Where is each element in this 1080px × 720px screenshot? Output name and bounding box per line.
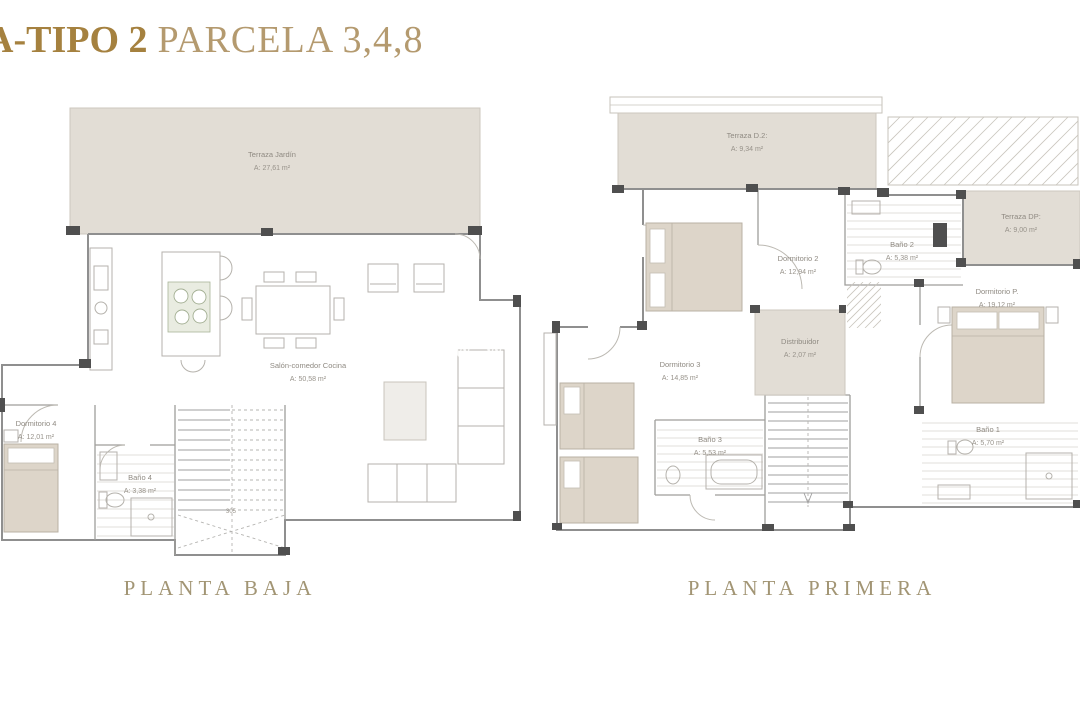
room-area-dormitorio-3: A: 14,85 m² bbox=[662, 375, 699, 382]
room-label-dormitorio-4: Dormitorio 4 bbox=[16, 419, 57, 428]
room-label-terraza-dp: Terraza DP: bbox=[1001, 212, 1041, 221]
sink bbox=[100, 452, 117, 480]
floor-plan-sheet: A-TIPO 2PARCELA 3,4,8 Terraza Jardín A: … bbox=[0, 0, 1080, 720]
sink bbox=[852, 201, 880, 214]
room-label-terraza-d2: Terraza D.2: bbox=[727, 131, 768, 140]
room-area-terraza-d2: A: 9,34 m² bbox=[731, 146, 764, 153]
beds-dormitorio-3 bbox=[560, 383, 638, 523]
room-label-dormitorio-3: Dormitorio 3 bbox=[660, 360, 701, 369]
room-label-bano-1: Baño 1 bbox=[976, 425, 1000, 434]
toilet bbox=[863, 260, 881, 274]
nightstand bbox=[938, 307, 950, 323]
room-area-distribuidor: A: 2,07 m² bbox=[784, 352, 817, 359]
room-label-salon: Salón-comedor Cocina bbox=[270, 361, 347, 370]
floor-plan-first: Terraza D.2: A: 9,34 m² Terraza DP: A: 9… bbox=[540, 95, 1080, 555]
nightstand bbox=[1046, 307, 1058, 323]
room-area-terraza-dp: A: 9,00 m² bbox=[1005, 227, 1038, 234]
toilet-tank bbox=[856, 260, 863, 274]
bathroom-2 bbox=[847, 201, 961, 277]
floor-plan-ground: Terraza Jardín A: 27,61 m² bbox=[0, 100, 540, 570]
room-area-terraza-jardin: A: 27,61 m² bbox=[254, 165, 291, 172]
bathroom-1 bbox=[922, 423, 1078, 503]
nightstand bbox=[4, 430, 18, 442]
toilet-tank bbox=[948, 441, 956, 454]
stair-note: 305 bbox=[226, 509, 237, 515]
room-label-bano-3: Baño 3 bbox=[698, 435, 722, 444]
room-area-dormitorio-4: A: 12,01 m² bbox=[18, 434, 55, 441]
coffee-table bbox=[384, 382, 426, 440]
stool bbox=[181, 360, 205, 372]
shower-tray bbox=[1026, 453, 1072, 499]
dining-table bbox=[242, 272, 344, 348]
caption-planta-baja: PLANTA BAJA bbox=[60, 576, 380, 601]
stool bbox=[220, 256, 232, 280]
bed-dormitorio-2 bbox=[646, 223, 742, 311]
room-area-salon: A: 50,58 m² bbox=[290, 376, 327, 383]
parapet bbox=[610, 97, 882, 113]
hob bbox=[168, 282, 210, 332]
stool bbox=[220, 296, 232, 320]
bed-dormitorio-p bbox=[938, 307, 1058, 403]
title-parcel: PARCELA 3,4,8 bbox=[158, 19, 424, 61]
toilet bbox=[666, 466, 680, 484]
room-label-bano-2: Baño 2 bbox=[890, 240, 914, 249]
exterior-ledge bbox=[544, 333, 556, 425]
room-label-bano-4: Baño 4 bbox=[128, 473, 152, 482]
caption-planta-primera: PLANTA PRIMERA bbox=[652, 576, 972, 601]
room-area-bano-1: A: 5,70 m² bbox=[972, 440, 1005, 447]
room-label-dormitorio-p: Dormitorio P. bbox=[976, 287, 1019, 296]
page-title: A-TIPO 2PARCELA 3,4,8 bbox=[0, 18, 424, 62]
staircase-first bbox=[768, 397, 848, 507]
staircase-ground: 305 bbox=[178, 405, 285, 555]
room-area-dormitorio-p: A: 19,12 m² bbox=[979, 302, 1016, 309]
armchairs bbox=[368, 264, 444, 292]
room-area-dormitorio-2: A: 12,94 m² bbox=[780, 269, 817, 276]
kitchen-island bbox=[162, 252, 232, 372]
room-label-distribuidor: Distribuidor bbox=[781, 337, 819, 346]
shower-tray bbox=[131, 498, 172, 536]
room-area-bano-3: A: 5,53 m² bbox=[694, 450, 727, 457]
room-area-bano-4: A: 3,38 m² bbox=[124, 488, 157, 495]
title-model: A-TIPO 2 bbox=[0, 19, 148, 61]
room-label-terraza-jardin: Terraza Jardín bbox=[248, 150, 296, 159]
bed-dormitorio-4 bbox=[4, 430, 58, 532]
tile-hatch bbox=[922, 423, 1078, 503]
shower-drain bbox=[1046, 473, 1052, 479]
kitchen-counter bbox=[90, 248, 112, 370]
bathtub-basin bbox=[711, 460, 757, 484]
shower-drain bbox=[148, 514, 154, 520]
room-label-dormitorio-2: Dormitorio 2 bbox=[778, 254, 819, 263]
room-area-bano-2: A: 5,38 m² bbox=[886, 255, 919, 262]
